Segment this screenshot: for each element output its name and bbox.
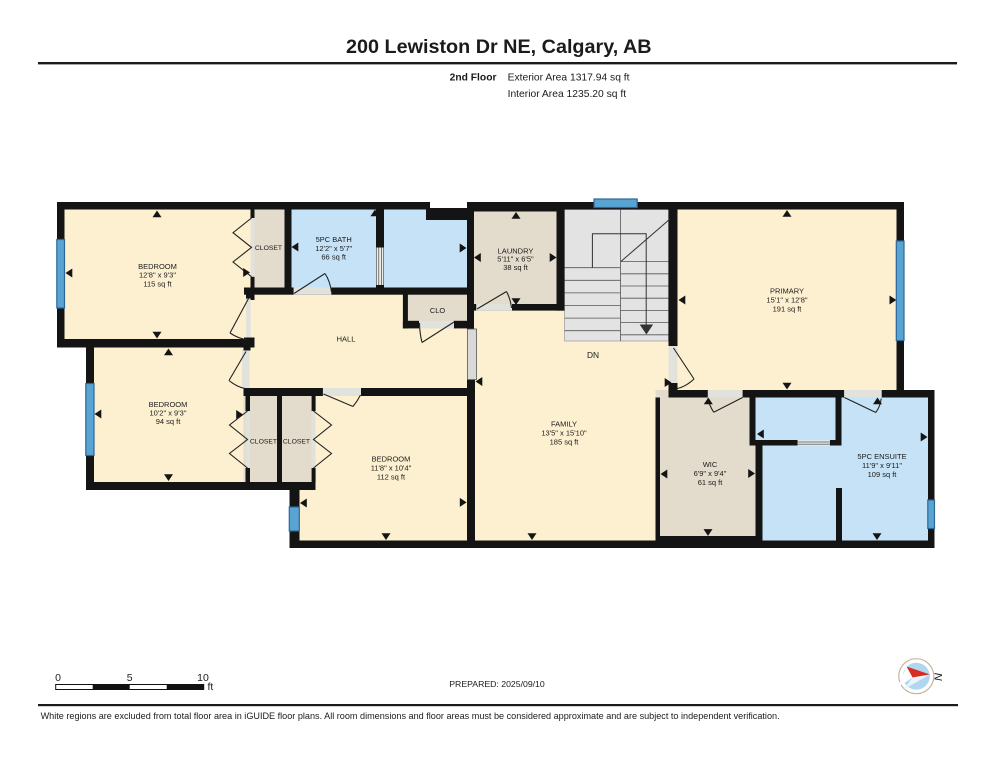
svg-text:2nd Floor: 2nd Floor: [450, 73, 497, 84]
svg-text:ft: ft: [208, 681, 214, 693]
svg-text:185 sq ft: 185 sq ft: [550, 437, 580, 446]
svg-text:5PC BATH: 5PC BATH: [316, 235, 352, 244]
svg-text:CLOSET: CLOSET: [250, 439, 277, 446]
svg-text:12'8" x 9'3": 12'8" x 9'3": [139, 271, 176, 280]
svg-text:PREPARED: 2025/09/10: PREPARED: 2025/09/10: [449, 679, 545, 689]
svg-text:13'5" x 15'10": 13'5" x 15'10": [541, 428, 587, 437]
svg-text:109 sq ft: 109 sq ft: [868, 470, 898, 479]
svg-text:12'2" x 5'7": 12'2" x 5'7": [315, 244, 352, 253]
svg-text:5PC ENSUITE: 5PC ENSUITE: [857, 452, 906, 461]
svg-text:61 sq ft: 61 sq ft: [698, 478, 724, 487]
svg-text:38 sq ft: 38 sq ft: [503, 263, 529, 272]
svg-text:11'9" x 9'11": 11'9" x 9'11": [862, 461, 902, 470]
svg-text:HALL: HALL: [337, 335, 356, 344]
svg-text:112 sq ft: 112 sq ft: [377, 473, 406, 482]
svg-text:94 sq ft: 94 sq ft: [156, 417, 182, 426]
svg-text:200 Lewiston Dr NE, Calgary, A: 200 Lewiston Dr NE, Calgary, AB: [346, 36, 652, 58]
svg-text:66 sq ft: 66 sq ft: [321, 253, 347, 262]
svg-text:DN: DN: [587, 350, 599, 360]
svg-text:Interior Area 1235.20 sq ft: Interior Area 1235.20 sq ft: [508, 89, 627, 100]
svg-text:6'9" x 9'4": 6'9" x 9'4": [694, 469, 727, 478]
svg-text:PRIMARY: PRIMARY: [770, 287, 804, 296]
svg-text:CLOSET: CLOSET: [255, 245, 282, 252]
svg-text:191 sq ft: 191 sq ft: [773, 304, 803, 313]
svg-text:CLO: CLO: [430, 306, 445, 315]
svg-text:WIC: WIC: [703, 460, 718, 469]
svg-text:15'1" x 12'8": 15'1" x 12'8": [766, 295, 807, 304]
svg-text:FAMILY: FAMILY: [551, 420, 577, 429]
svg-text:5: 5: [127, 672, 133, 684]
svg-text:CLOSET: CLOSET: [283, 439, 310, 446]
svg-text:N: N: [933, 673, 945, 681]
svg-text:White regions are excluded fro: White regions are excluded from total fl…: [41, 711, 780, 721]
svg-text:BEDROOM: BEDROOM: [138, 262, 177, 271]
svg-text:0: 0: [55, 672, 61, 684]
svg-text:11'8" x 10'4": 11'8" x 10'4": [371, 464, 412, 473]
svg-text:BEDROOM: BEDROOM: [372, 455, 411, 464]
svg-text:115 sq ft: 115 sq ft: [143, 279, 172, 288]
svg-text:Exterior Area 1317.94 sq ft: Exterior Area 1317.94 sq ft: [508, 73, 630, 84]
